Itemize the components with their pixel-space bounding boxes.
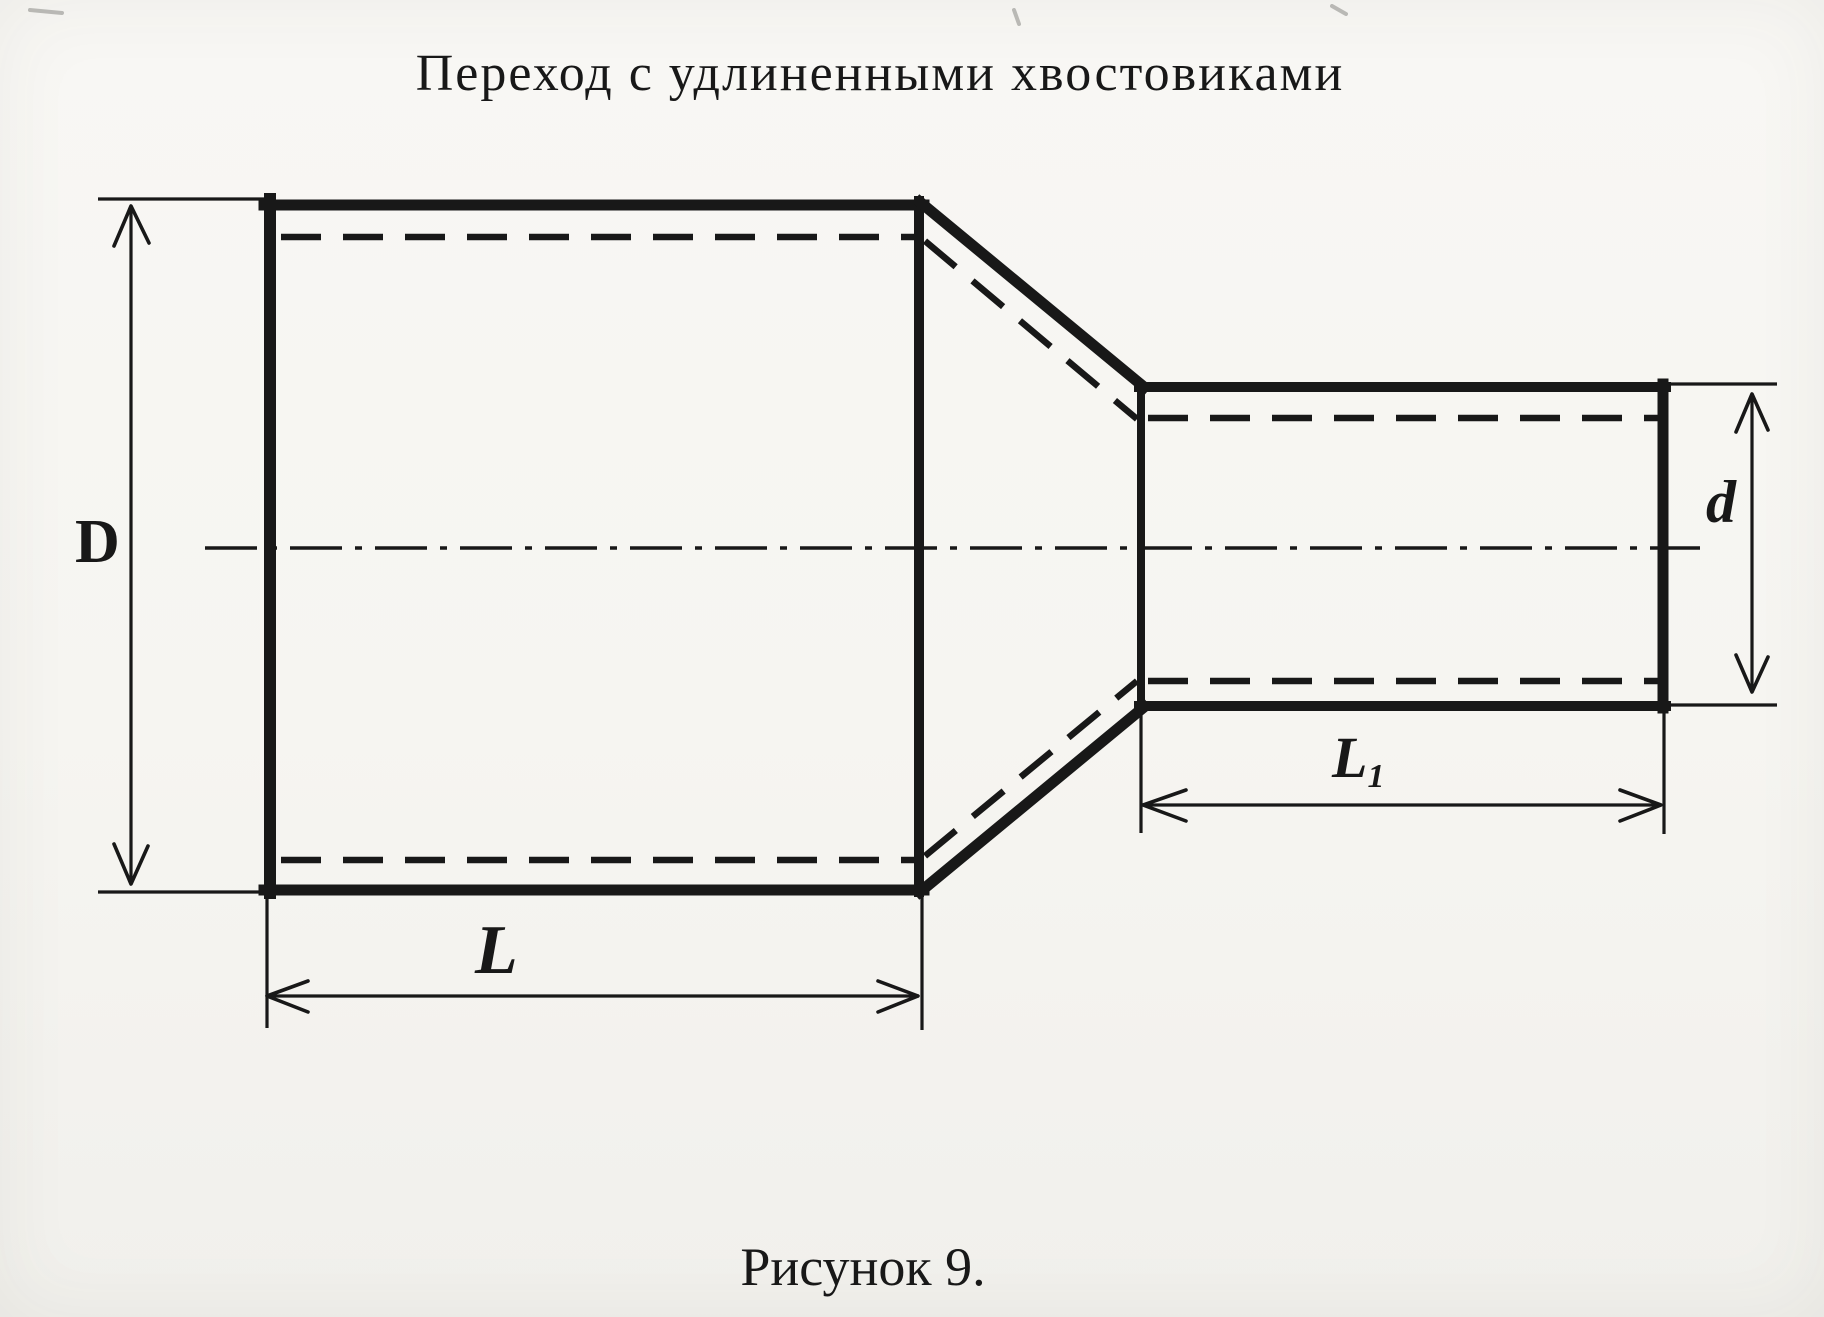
cone-top-edge <box>920 202 1144 387</box>
dimension-label-L1-main: L <box>1331 725 1367 790</box>
dimension-label-L1-subscript: 1 <box>1367 758 1384 795</box>
dimension-label-L: L <box>474 912 518 989</box>
reducer-technical-drawing: D d L L1 <box>0 0 1824 1317</box>
cone-bottom-edge <box>920 707 1144 892</box>
dimension-D: D <box>75 199 266 892</box>
dimension-label-d: d <box>1706 469 1737 535</box>
scan-artifacts <box>30 6 1346 24</box>
scan-speck <box>1332 6 1346 14</box>
scan-speck <box>30 10 62 13</box>
dimension-label-D: D <box>75 508 120 576</box>
dimension-L: L <box>266 896 922 1030</box>
cone-inner-top-dashed <box>925 241 1137 419</box>
cone-inner-bottom-dashed <box>925 681 1137 856</box>
dimension-label-L1: L1 <box>1331 725 1384 795</box>
scanned-drawing-page: Переход с удлиненными хвостовиками <box>0 0 1824 1317</box>
dimension-L1: L1 <box>1141 711 1664 834</box>
figure-caption: Рисунок 9. <box>740 1236 985 1298</box>
pipe-outline <box>264 199 1666 893</box>
scan-speck <box>1014 10 1019 24</box>
dimension-d: d <box>1668 384 1777 705</box>
